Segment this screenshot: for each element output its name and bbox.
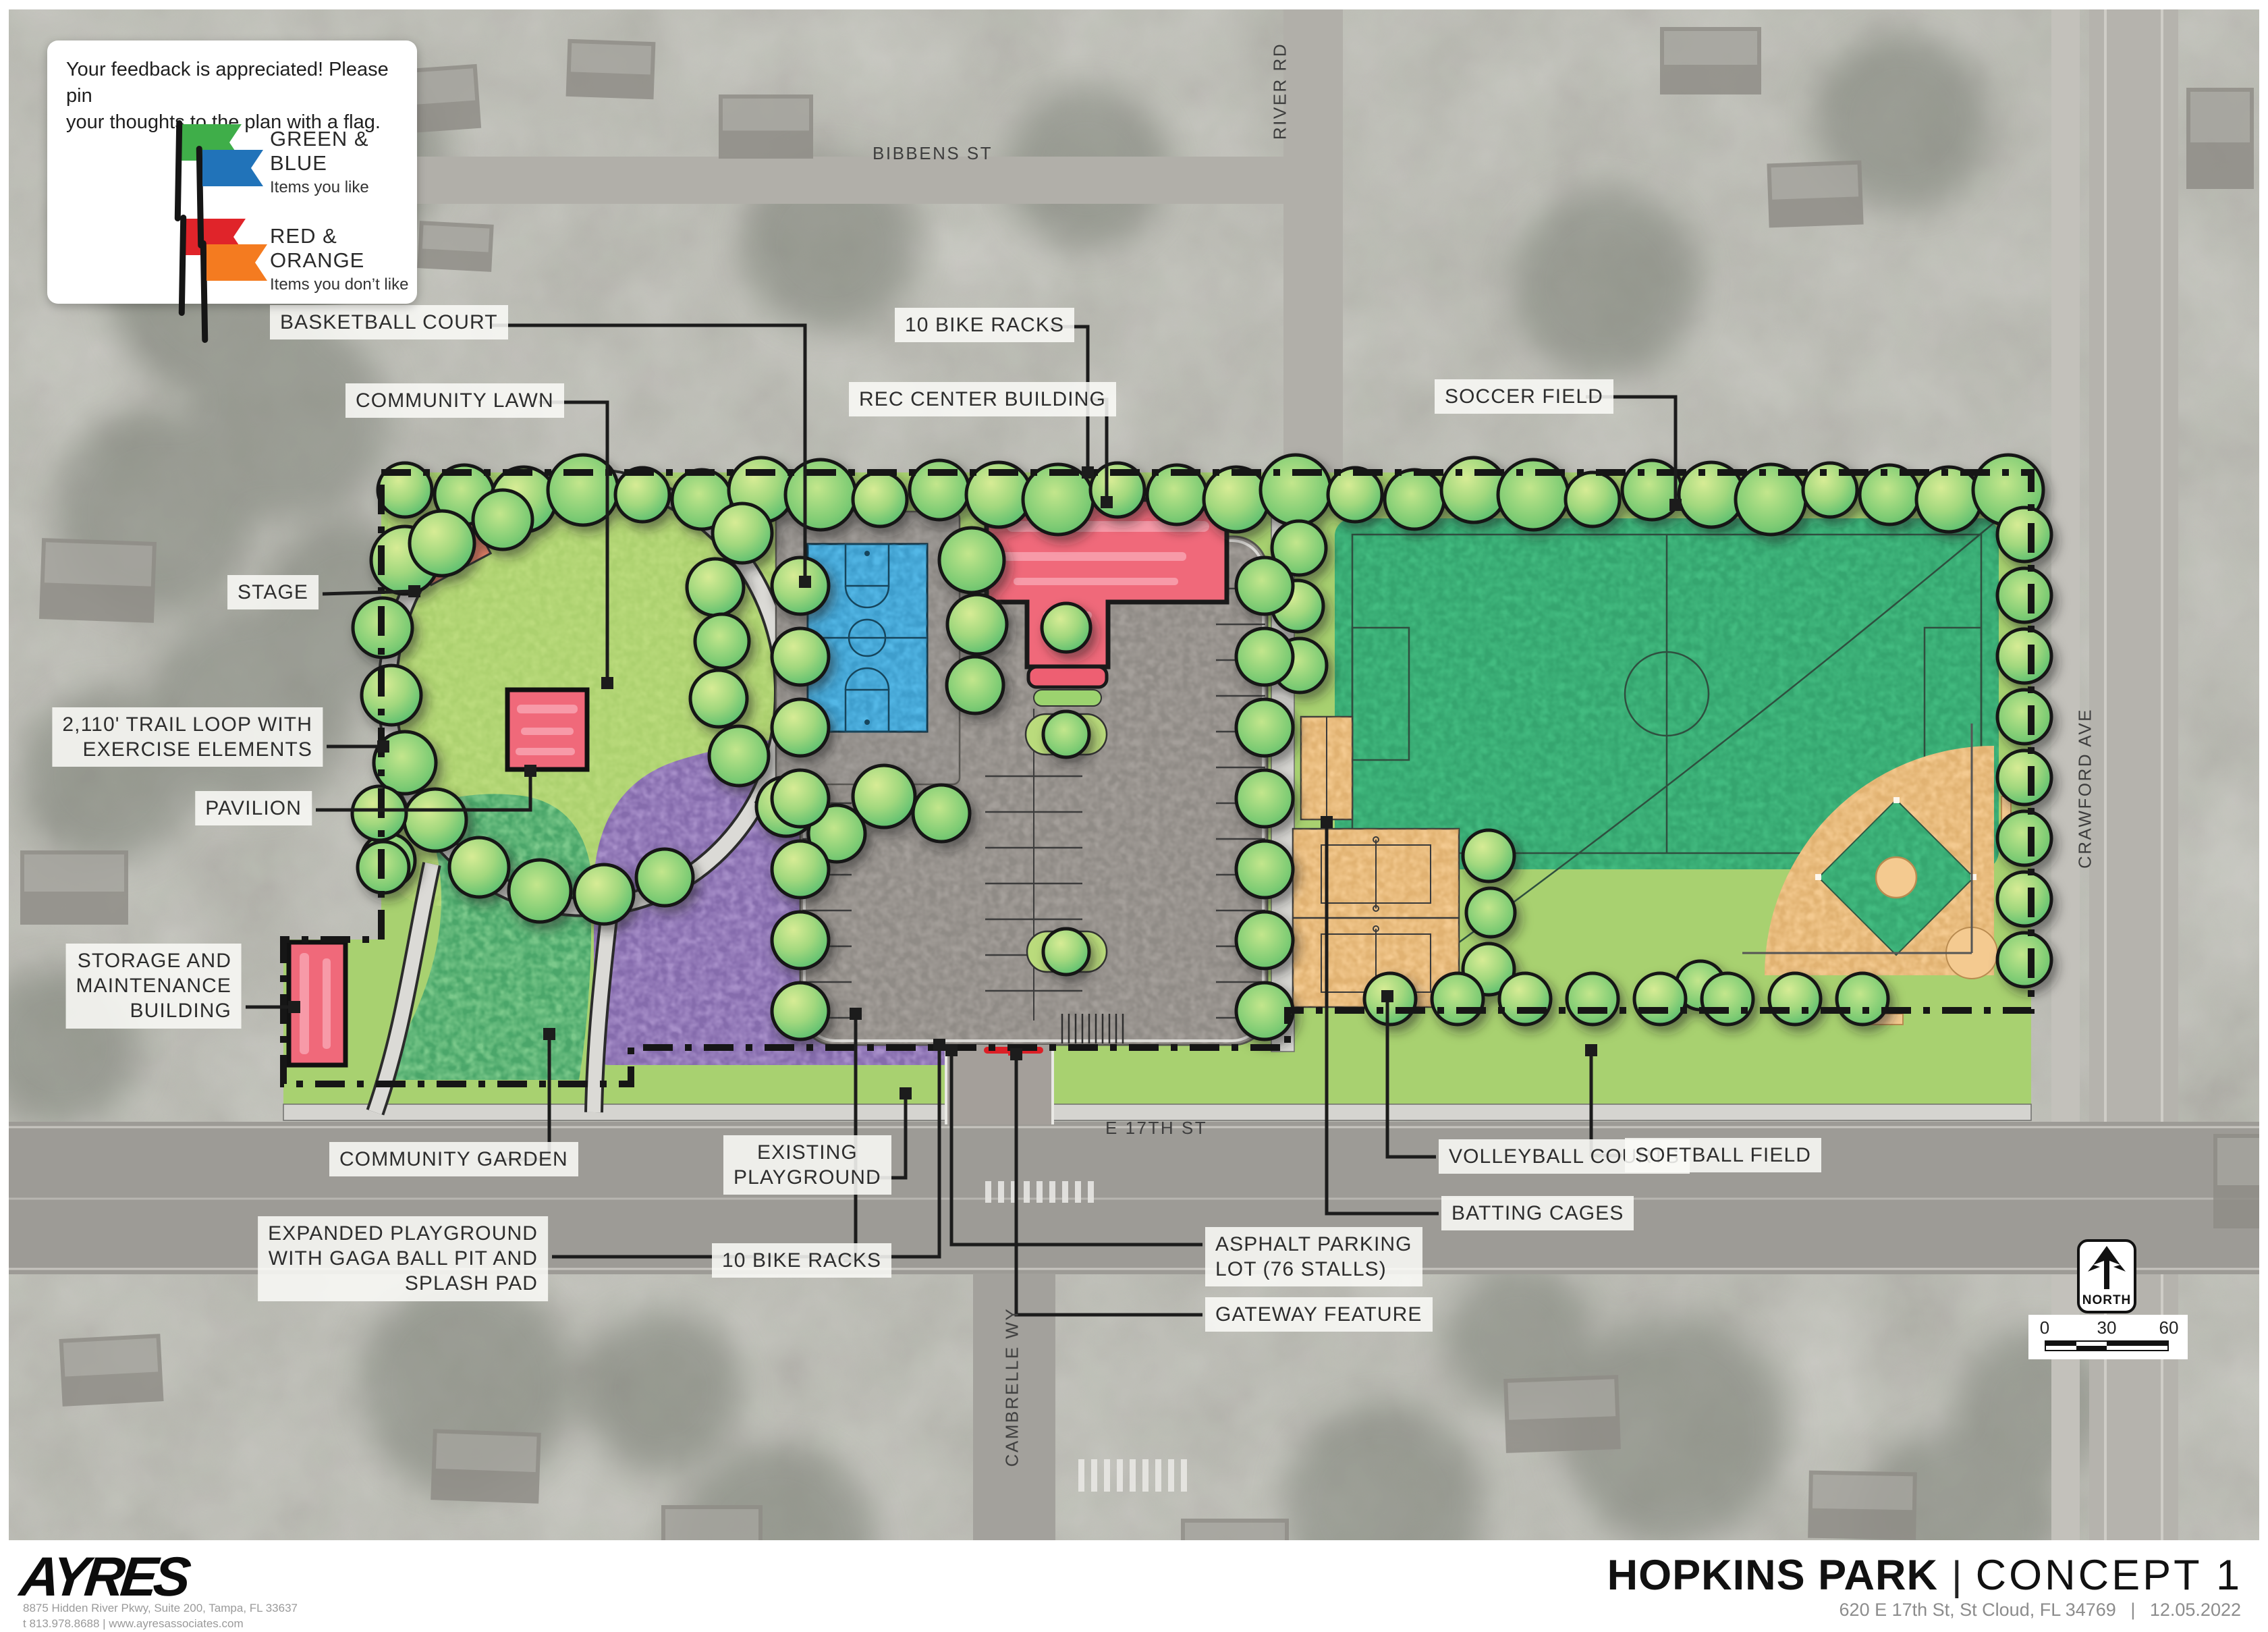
firm-contact-line: t 813.978.8688 | www.ayresassociates.com	[23, 1616, 298, 1632]
pavilion-building	[507, 690, 587, 769]
sheet-margin	[0, 0, 9, 1620]
callout-expanded-playground: EXPANDED PLAYGROUNDWITH GAGA BALL PIT AN…	[258, 1216, 548, 1301]
callout-line: BUILDING	[76, 998, 231, 1023]
batting-cages-area	[1301, 717, 1352, 819]
scale-bar: 0 30 60	[2028, 1315, 2188, 1359]
north-arrow: NORTH	[2077, 1239, 2136, 1313]
legend-like-name: GREEN & BLUE	[270, 127, 417, 175]
callout-trail-loop: 2,110' TRAIL LOOP WITHEXERCISE ELEMENTS	[52, 707, 323, 767]
north-label: NORTH	[2080, 1293, 2134, 1308]
flag-pole	[175, 120, 183, 221]
callout-line: SOCCER FIELD	[1445, 384, 1603, 409]
callout-line: BASKETBALL COURT	[280, 310, 498, 335]
callout-line: ASPHALT PARKING	[1215, 1232, 1412, 1257]
project-address: 620 E 17th St, St Cloud, FL 34769	[1840, 1600, 2116, 1620]
callout-existing-playground: EXISTINGPLAYGROUND	[723, 1135, 891, 1195]
callout-line: 10 BIKE RACKS	[722, 1248, 881, 1273]
subtitle-divider: |	[2130, 1600, 2135, 1620]
callout-line: PAVILION	[205, 796, 302, 821]
street-label-bibbens: BIBBENS ST	[873, 143, 993, 164]
callout-line: PLAYGROUND	[734, 1165, 881, 1190]
callout-line: STORAGE AND	[76, 948, 231, 973]
callout-line: EXPANDED PLAYGROUND	[268, 1221, 538, 1246]
street-label-river: RIVER RD	[1270, 43, 1291, 140]
callout-bike-racks-south: 10 BIKE RACKS	[712, 1243, 891, 1278]
callout-line: 2,110' TRAIL LOOP WITH	[62, 712, 312, 737]
legend-dislike-name: RED & ORANGE	[270, 224, 417, 273]
sheet-subtitle: 620 E 17th St, St Cloud, FL 34769 | 12.0…	[1840, 1600, 2241, 1621]
callout-line: WITH GAGA BALL PIT AND	[268, 1246, 538, 1271]
callout-line: 10 BIKE RACKS	[905, 312, 1064, 337]
street-label-cambrelle: CAMBRELLE WY	[1002, 1307, 1023, 1467]
north-arrow-icon	[2082, 1245, 2131, 1292]
callout-softball-field: SOFTBALL FIELD	[1625, 1138, 1821, 1172]
site-plan-sheet: Your feedback is appreciated! Please pin…	[0, 0, 2268, 1620]
sheet-title-divider: |	[1952, 1552, 1962, 1599]
sheet-title-secondary: CONCEPT 1	[1976, 1551, 2242, 1600]
sheet-date: 12.05.2022	[2150, 1600, 2241, 1620]
sheet-margin	[0, 0, 2268, 9]
callout-line: EXERCISE ELEMENTS	[62, 737, 312, 762]
callout-line: COMMUNITY GARDEN	[339, 1147, 568, 1172]
scale-tick-60: 60	[2159, 1317, 2179, 1338]
callout-line: EXISTING	[734, 1140, 881, 1165]
legend-intro: Your feedback is appreciated! Please pin…	[66, 57, 417, 136]
callout-community-lawn: COMMUNITY LAWN	[345, 383, 564, 418]
blue-flag-icon	[202, 150, 263, 186]
callout-gateway-feature: GATEWAY FEATURE	[1205, 1297, 1433, 1332]
callout-line: SOFTBALL FIELD	[1635, 1143, 1811, 1168]
legend-intro-line1: Your feedback is appreciated! Please pin	[66, 57, 417, 109]
scale-tick-0: 0	[2040, 1317, 2049, 1338]
callout-line: LOT (76 STALLS)	[1215, 1257, 1412, 1282]
callout-rec-center: REC CENTER BUILDING	[849, 382, 1116, 416]
callout-line: GATEWAY FEATURE	[1215, 1302, 1422, 1327]
callout-batting-cages: BATTING CAGES	[1441, 1196, 1634, 1230]
legend-like-desc: Items you like	[270, 178, 417, 197]
ayres-logo: AYRES	[17, 1546, 190, 1609]
callout-storage-maintenance: STORAGE ANDMAINTENANCEBUILDING	[66, 944, 242, 1029]
legend-item-like: GREEN & BLUE Items you like	[270, 127, 417, 197]
legend-dislike-desc: Items you don’t like	[270, 275, 417, 294]
callout-community-garden: COMMUNITY GARDEN	[329, 1142, 578, 1176]
callout-line: COMMUNITY LAWN	[356, 388, 554, 413]
callout-line: BATTING CAGES	[1451, 1201, 1624, 1226]
park-areas	[283, 472, 2031, 1124]
callout-line: STAGE	[238, 580, 308, 605]
callout-asphalt-parking: ASPHALT PARKINGLOT (76 STALLS)	[1205, 1227, 1422, 1286]
orange-flag-icon	[206, 244, 267, 281]
callout-line: MAINTENANCE	[76, 973, 231, 998]
firm-address-line: 8875 Hidden River Pkwy, Suite 200, Tampa…	[23, 1601, 298, 1616]
callout-basketball-court: BASKETBALL COURT	[270, 305, 508, 339]
callout-pavilion: PAVILION	[195, 791, 312, 825]
sheet-margin	[2259, 0, 2268, 1620]
sheet-title: HOPKINS PARK | CONCEPT 1	[1607, 1551, 2242, 1600]
callout-bike-racks-north: 10 BIKE RACKS	[895, 308, 1074, 342]
callout-stage: STAGE	[227, 575, 319, 609]
callout-soccer-field: SOCCER FIELD	[1435, 379, 1613, 414]
scale-tick-30: 30	[2097, 1317, 2117, 1338]
street-label-crawford: CRAWFORD AVE	[2075, 708, 2096, 869]
sheet-title-primary: HOPKINS PARK	[1607, 1551, 1938, 1600]
legend-item-dislike: RED & ORANGE Items you don’t like	[270, 224, 417, 294]
scale-bar-graphic	[2045, 1340, 2169, 1351]
flag-pole	[179, 215, 187, 316]
firm-address: 8875 Hidden River Pkwy, Suite 200, Tampa…	[23, 1601, 298, 1632]
callout-line: REC CENTER BUILDING	[859, 387, 1106, 412]
callout-line: SPLASH PAD	[268, 1271, 538, 1296]
street-label-e17th: E 17TH ST	[1105, 1118, 1207, 1139]
feedback-legend: Your feedback is appreciated! Please pin…	[47, 40, 417, 304]
